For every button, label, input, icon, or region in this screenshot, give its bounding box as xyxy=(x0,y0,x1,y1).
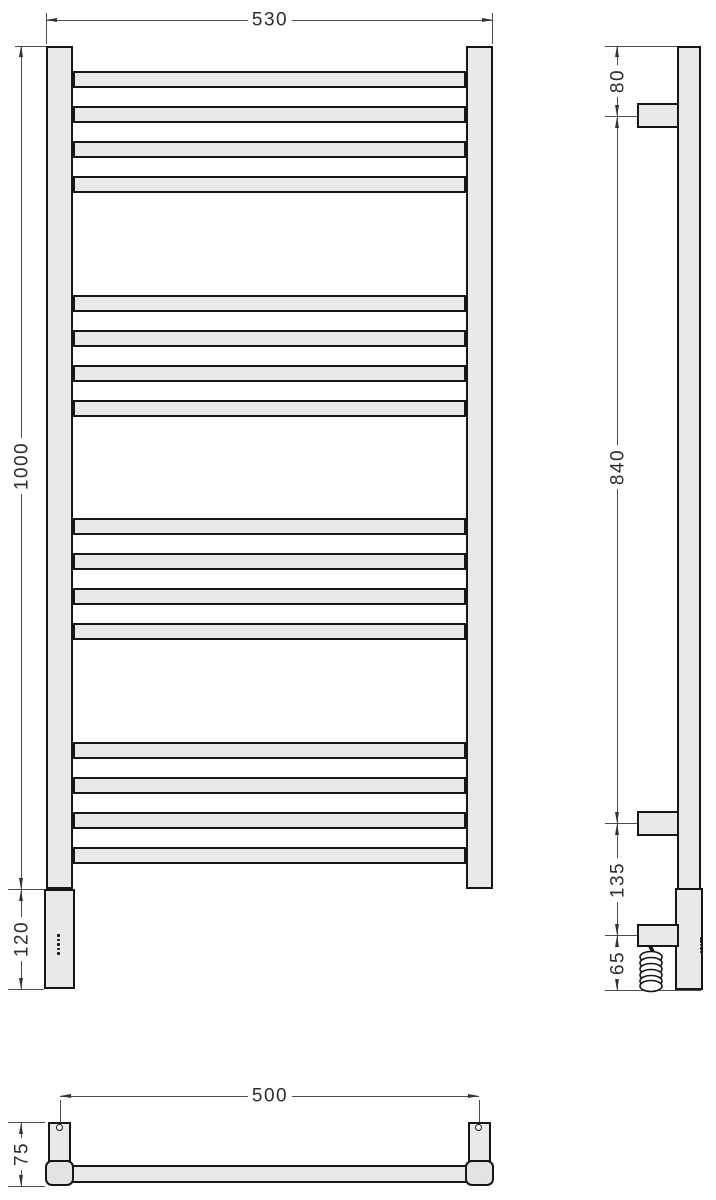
arrow-120-bottom xyxy=(19,978,23,989)
rung xyxy=(73,588,466,605)
rung xyxy=(73,71,466,88)
indicator-dot xyxy=(57,943,60,946)
side-panel xyxy=(675,888,703,990)
arrow-135-bottom xyxy=(615,924,619,935)
arrow-840-top xyxy=(615,117,619,128)
arrow-840-bottom xyxy=(615,812,619,823)
rung xyxy=(73,812,466,829)
arrow-65-top xyxy=(615,936,619,947)
rung xyxy=(73,141,466,158)
bottom-crossbar xyxy=(71,1165,468,1183)
dim-label-overall-height: 1000 xyxy=(12,438,33,494)
indicator-dot xyxy=(700,947,703,950)
indicator-dot xyxy=(57,934,60,937)
arrow-80-bottom xyxy=(615,105,619,116)
arrow-1000-top xyxy=(19,46,23,57)
indicator-dot xyxy=(57,952,60,955)
dim-label-mount-hole-spacing: 500 xyxy=(248,1086,292,1107)
arrow-75-top xyxy=(19,1123,23,1134)
dim-label-wall-depth: 75 xyxy=(12,1138,33,1170)
technical-drawing: 530 1000 120 80 840 135 65 500 75 xyxy=(0,0,716,1200)
dim-label-overall-width: 530 xyxy=(248,10,292,31)
ext-line-upper-bracket xyxy=(605,116,637,117)
arrow-530-right xyxy=(482,18,493,22)
rung xyxy=(73,847,466,864)
ext-line-120-top xyxy=(8,889,44,890)
ext-line-lower-bracket xyxy=(605,823,637,824)
ext-line-75-bottom xyxy=(8,1186,45,1187)
dim-label-box-to-bottom: 65 xyxy=(608,947,629,979)
dim-label-panel-height: 120 xyxy=(12,917,33,961)
front-left-post xyxy=(46,46,73,889)
arrow-500-right xyxy=(468,1094,479,1098)
rung xyxy=(73,365,466,382)
rung xyxy=(73,400,466,417)
rung xyxy=(73,777,466,794)
arrow-1000-bottom xyxy=(19,878,23,889)
electric-panel xyxy=(44,889,75,989)
indicator-dot xyxy=(57,948,60,951)
rung xyxy=(73,176,466,193)
ext-line-75-top xyxy=(8,1122,45,1123)
indicator-dot xyxy=(57,939,60,942)
rung xyxy=(73,518,466,535)
left-post-section xyxy=(45,1160,74,1186)
ext-line-120-bottom xyxy=(8,989,44,990)
ext-line-cable-box xyxy=(605,935,637,936)
dim-label-top-to-upper-bracket: 80 xyxy=(608,65,629,97)
arrow-500-left xyxy=(60,1094,71,1098)
arrow-135-top xyxy=(615,824,619,835)
spiral-cable xyxy=(635,943,671,993)
side-post xyxy=(677,46,701,890)
left-mount-hole xyxy=(56,1124,63,1131)
rung xyxy=(73,106,466,123)
rung xyxy=(73,330,466,347)
cable-connection-box xyxy=(637,924,679,947)
arrow-80-top xyxy=(615,46,619,57)
rung xyxy=(73,742,466,759)
indicator-dot xyxy=(700,951,703,954)
upper-wall-bracket xyxy=(637,103,679,128)
front-right-post xyxy=(466,46,493,889)
lower-wall-bracket xyxy=(637,811,679,836)
rung xyxy=(73,553,466,570)
indicator-dot xyxy=(700,940,703,943)
right-mount-hole xyxy=(475,1124,482,1131)
ext-line-500-right xyxy=(479,1100,480,1124)
indicator-dot xyxy=(700,937,703,940)
right-post-section xyxy=(465,1160,494,1186)
dim-label-bracket-spacing: 840 xyxy=(608,445,629,489)
arrow-75-bottom xyxy=(19,1175,23,1186)
arrow-530-left xyxy=(46,18,57,22)
rung xyxy=(73,623,466,640)
arrow-65-bottom xyxy=(615,979,619,990)
ext-line-500-left xyxy=(60,1100,61,1124)
rung xyxy=(73,295,466,312)
dim-label-bracket-to-box: 135 xyxy=(608,858,629,902)
arrow-120-top xyxy=(19,890,23,901)
